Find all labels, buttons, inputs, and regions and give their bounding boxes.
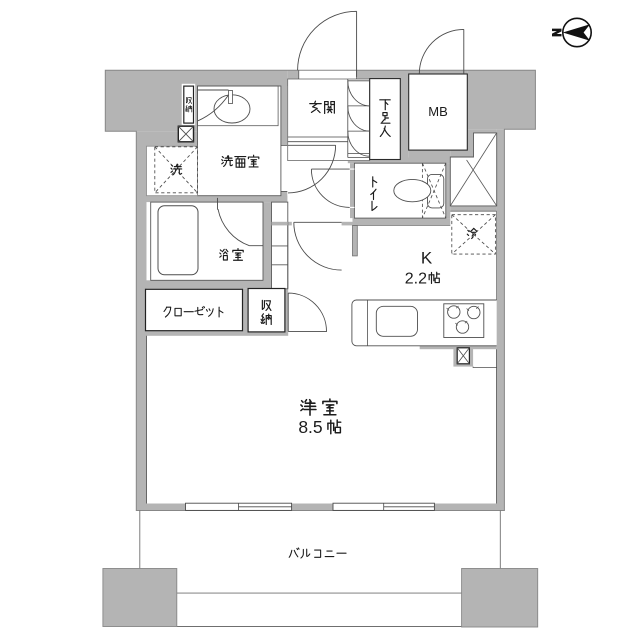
svg-text:MB: MB [428, 104, 448, 119]
svg-text:K: K [421, 249, 433, 268]
svg-text:2.2: 2.2 [405, 271, 427, 288]
svg-text:8.5: 8.5 [298, 417, 322, 437]
svg-text:N: N [549, 28, 561, 36]
